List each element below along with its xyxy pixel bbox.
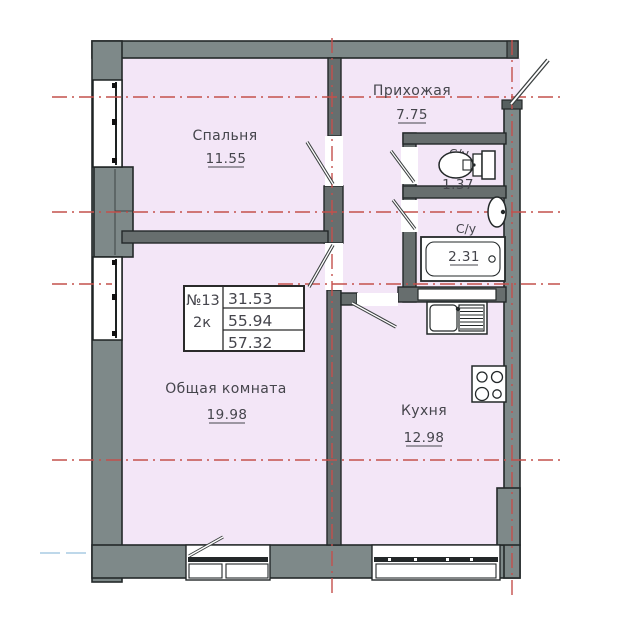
svg-text:Прихожая: Прихожая xyxy=(373,83,451,99)
toilet-icon xyxy=(439,151,495,179)
wall-niche xyxy=(418,289,496,300)
wall-bedroom-living xyxy=(122,231,328,243)
svg-text:12.98: 12.98 xyxy=(404,430,445,446)
svg-text:7.75: 7.75 xyxy=(396,107,428,123)
wall-wc1-top xyxy=(403,133,506,144)
wall-top xyxy=(92,41,518,58)
svg-text:11.55: 11.55 xyxy=(206,151,247,167)
washbasin-icon xyxy=(488,197,506,227)
area-total: 57.32 xyxy=(228,334,272,352)
floor-plan-canvas: С/у xyxy=(0,0,617,617)
area-heated: 55.94 xyxy=(228,312,272,330)
window-kitchen-icon xyxy=(372,545,500,580)
unit-info-box: №13 2к 31.53 55.94 57.32 xyxy=(184,286,304,352)
room-area-wc1: 1.37 xyxy=(442,177,474,193)
svg-text:2.31: 2.31 xyxy=(448,249,480,265)
wall-living-kitchen xyxy=(327,290,341,545)
svg-text:Кухня: Кухня xyxy=(401,403,447,419)
unit-type: 2к xyxy=(193,315,211,331)
unit-number: №13 xyxy=(186,293,220,309)
area-living: 31.53 xyxy=(228,290,272,308)
svg-text:Спальня: Спальня xyxy=(192,128,257,144)
svg-text:19.98: 19.98 xyxy=(207,407,248,423)
svg-text:Общая комната: Общая комната xyxy=(165,381,287,397)
stove-icon xyxy=(472,366,506,402)
floor-plan-drawing: С/у xyxy=(0,0,617,617)
window-bedroom-icon xyxy=(93,80,122,167)
kitchen-sink-icon xyxy=(427,302,487,334)
svg-text:С/у: С/у xyxy=(456,221,477,236)
wall-pilaster-right xyxy=(497,488,520,545)
window-living-left-icon xyxy=(93,257,122,340)
svg-text:1.37: 1.37 xyxy=(442,177,474,193)
